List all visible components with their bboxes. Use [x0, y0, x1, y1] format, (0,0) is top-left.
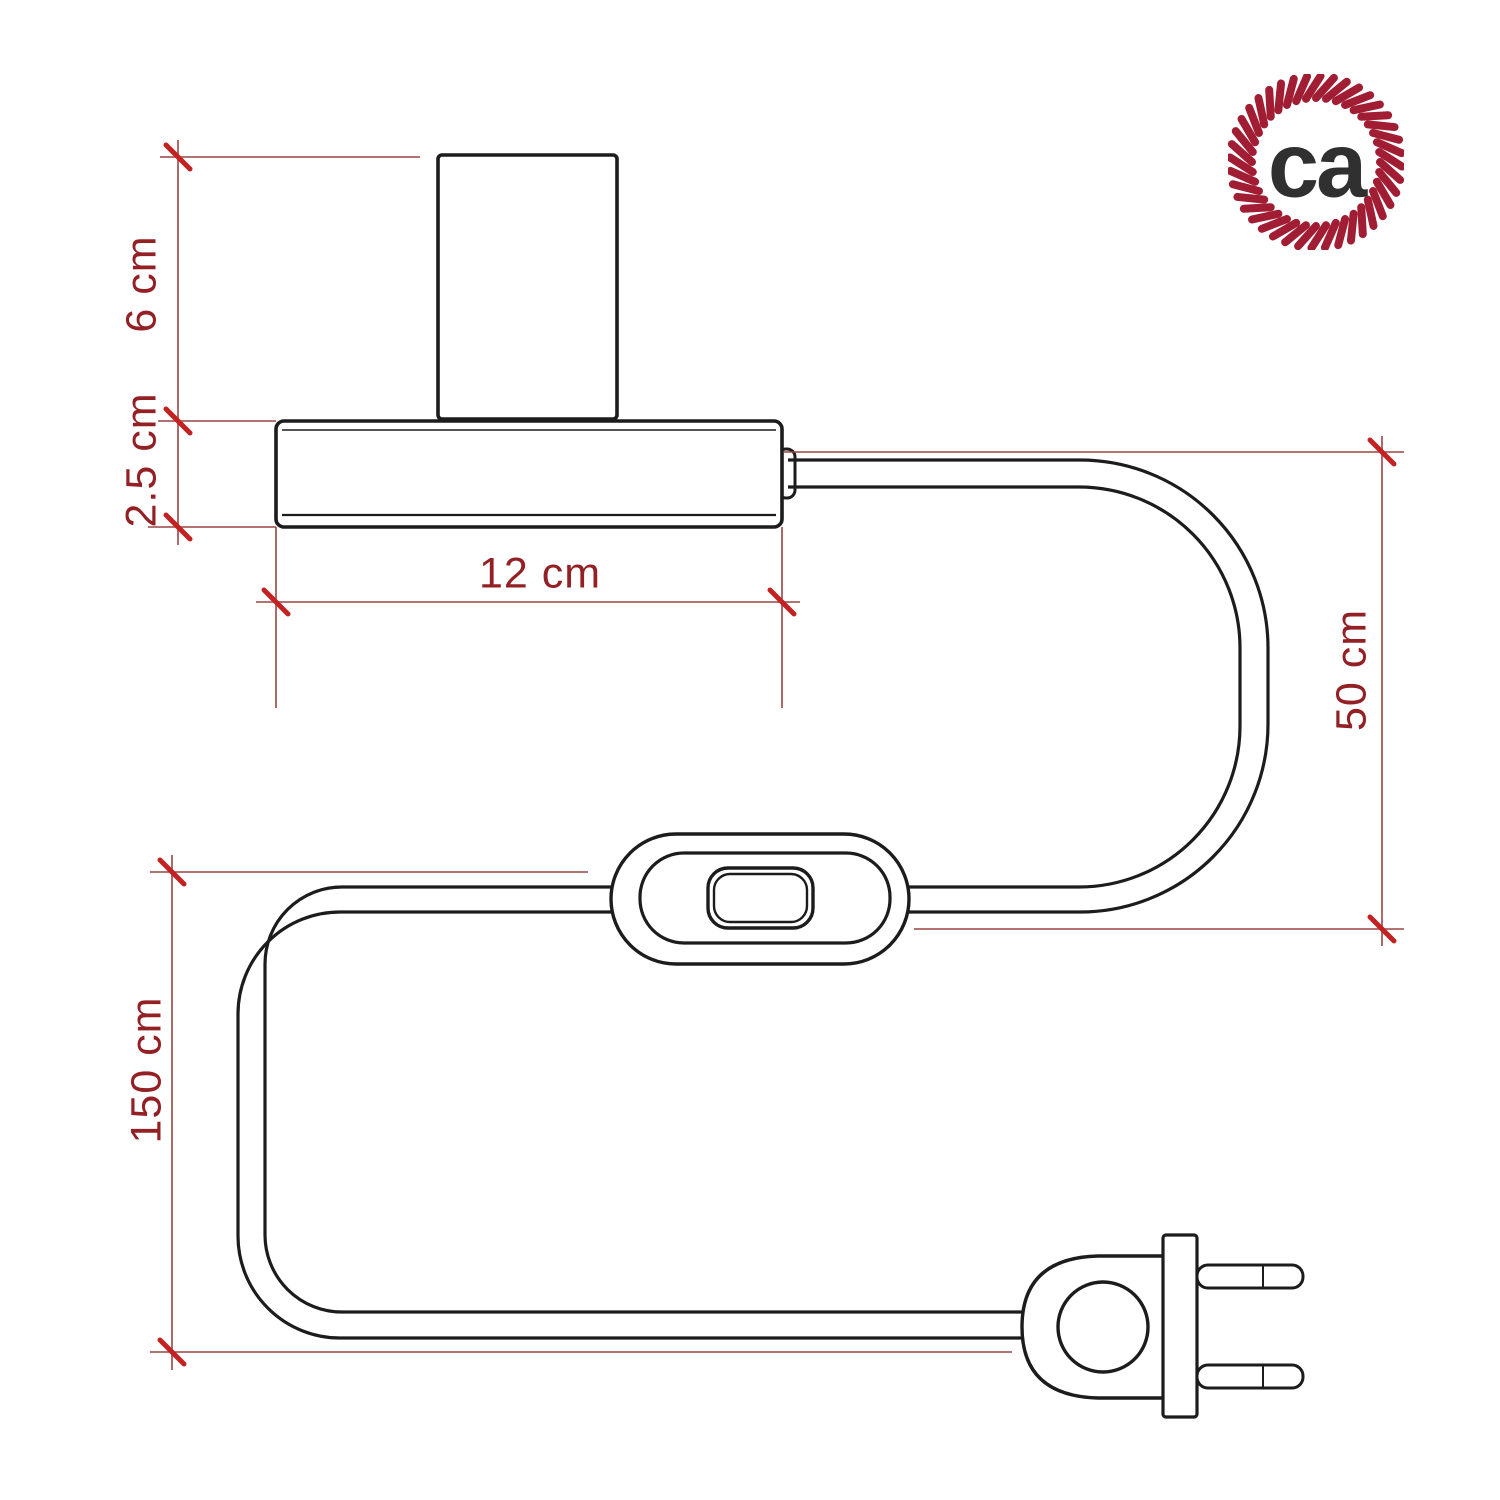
- lamp: [276, 155, 782, 527]
- dimension-label-cable-switch-to-plug: 150 cm: [123, 996, 172, 1143]
- lamp-dimension-diagram: 6 cm 2.5 cm 12 cm 50 cm 150 cm ca: [0, 0, 1500, 1500]
- power-plug: [1022, 1235, 1303, 1417]
- rope-strand: [1258, 98, 1264, 124]
- dimension-label-base-height: 2.5 cm: [118, 392, 167, 527]
- plug-body-circle: [1058, 1282, 1148, 1372]
- rope-strand: [1368, 200, 1374, 226]
- rope-strand: [1237, 197, 1264, 200]
- logo-text: ca: [1268, 113, 1364, 218]
- rope-strand: [1278, 83, 1281, 110]
- dimension-lines: [148, 140, 1404, 1370]
- creative-cables-logo: ca: [1228, 74, 1404, 250]
- plug-prong-top: [1197, 1265, 1303, 1288]
- switch-button-inner: [714, 874, 807, 922]
- rope-strand: [1354, 104, 1380, 110]
- lamp-holder-cylinder: [438, 155, 617, 419]
- inline-switch: [611, 834, 909, 964]
- rope-strand: [1361, 115, 1388, 117]
- cable-switch-to-plug: [238, 887, 1032, 1338]
- plug-face-plate: [1163, 1235, 1197, 1417]
- rope-strand: [1244, 207, 1271, 209]
- rope-strand: [1368, 124, 1395, 127]
- cable-line: [238, 912, 1032, 1338]
- dimension-label-base-width: 12 cm: [479, 550, 601, 599]
- plug-prong-bottom: [1197, 1365, 1303, 1388]
- dimension-ticks: [160, 145, 1394, 1364]
- dimension-label-lamp-holder-height: 6 cm: [118, 235, 167, 332]
- lamp-base: [276, 421, 782, 527]
- cable-line: [788, 487, 1240, 887]
- dimension-label-cable-lamp-to-switch: 50 cm: [1328, 609, 1377, 731]
